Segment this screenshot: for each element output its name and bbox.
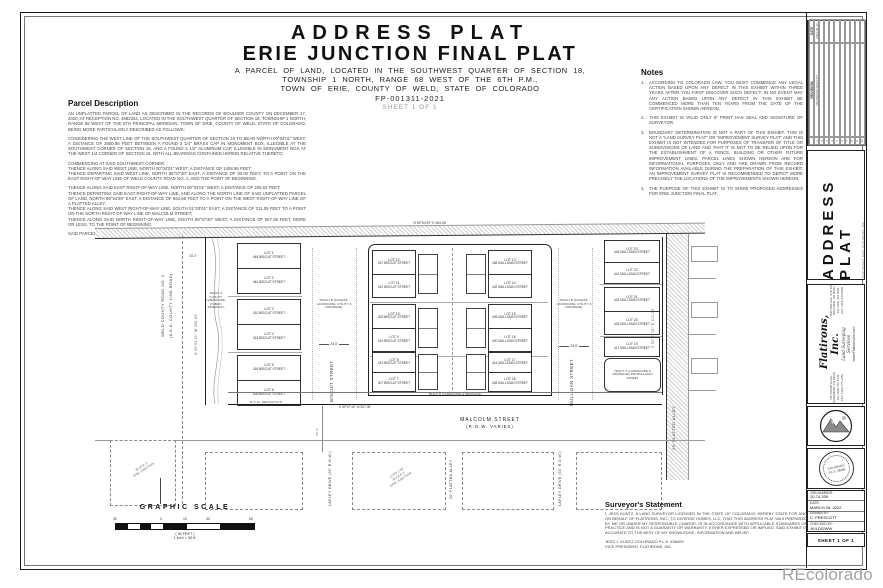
row-dedication-label: R.O.W. DEDICATION [240,401,292,405]
lapley-drive-west-label: LAPLEY DRIVE (60' R.O.W.) [328,452,332,506]
lot-13: LOT 13438 MULLIGAN STREET [489,251,531,274]
tract-b-west-label: TRACT B (ACCESS, LANDSCAPE, UTILITY & DR… [316,299,352,310]
road-centerline [182,236,183,504]
note-item: 2. THIS EXHIBIT IS VALID ONLY IF PRINT H… [641,115,803,125]
plat-sheet: ADDRESS PLAT ERIE JUNCTION FINAL PLAT A … [0,0,883,588]
building-lots-1-2: LOT 1448 BISCUIT STREET LOT 2440 BISCUIT… [237,243,301,294]
surveyors-statement-heading: Surveyor's Statement [605,500,807,509]
west-boundary-bearing: N 00°04'01" W 208.63' [194,288,198,380]
curb-line [356,248,357,400]
lot-16: LOT 16420 MULLIGAN STREET [489,328,531,352]
south-boundary-bearing: S 89°57'40" W 567.08' [300,406,410,410]
page-subtitle-plat-name: ERIE JUNCTION FINAL PLAT [120,43,700,66]
neighbor-parcel: LOTS 1-16 BLOCK 2 ERIE JUNCTION [352,452,446,510]
tract-b-east-label: TRACT B (ACCESS, LANDSCAPE, UTILITY & DR… [556,299,592,310]
parcel-description-p2: CONSIDERING THE WEST LINE OF THE SOUTHWE… [68,136,306,157]
building-lots-8-7: LOT 8413 BISCUIT STREET LOT 7407 BISCUIT… [372,352,416,392]
curb-line [592,248,593,400]
tract-d-label: TRACT D (LANDSCAPE & DRAINAGE) [420,393,490,396]
firm-name: Flatirons, Inc. [819,319,841,369]
note-item: 4. THE PURPOSE OF THIS EXHIBIT IS TO SHO… [641,186,803,196]
scale-ratio: 1 inch = 30 ft. [115,536,255,540]
neighbor-footprint [691,358,718,374]
sheet-title-vertical: ADDRESS PLAT COPYRIGHT 2022, FLATIRONS, … [808,150,866,280]
garage [466,254,486,294]
building-lots-23-22: LOT 23449 MULLIGAN STREET LOT 22441 MULL… [604,240,660,284]
lot-12: LOT 12437 BISCUIT STREET [373,251,415,274]
east-boundary-bearing: S 01°03'01" E 211.09' [651,282,655,374]
curb-line [558,248,559,400]
lot-3: LOT 3432 BISCUIT STREET [238,300,300,324]
sheet-number-box: SHEET 1 OF 1 [807,533,865,547]
neighbor-parcel-label: LOTS 1-16 BLOCK 2 ERIE JUNCTION [374,458,424,496]
surveyor-signature-title: VICE PRESIDENT, FLATIRONS, INC [605,545,807,550]
tract-a-strip [206,238,226,404]
lot-14: LOT 14432 MULLIGAN STREET [489,274,531,298]
neighbor-parcel-label: BLOCK 3 ERIE JUNCTION [121,453,165,486]
parcel-description-heading: Parcel Description [68,99,306,108]
lot-11: LOT 11431 BISCUIT STREET [373,274,415,298]
scale-bar: 30 0 15 30 60 ( IN FEET ) 1 inch = 30 ft… [115,518,255,540]
checked-by-row: CHECKED BY: JK/LDS/WW [808,522,864,532]
date-row: DATE: MARCH 28, 2022 [808,501,864,511]
parcel-description: Parcel Description AN UNPLATTED PARCEL O… [68,99,306,240]
lot-22: LOT 22441 MULLIGAN STREET [605,262,659,284]
lot-line [370,302,548,303]
south-alley-label: 20' PLATTED ALLEY [449,452,453,506]
dim-30ft: 30.0' [184,255,202,259]
parcel-description-p4: THENCE ALONG SAID EAST RIGHT-OF-WAY LINE… [68,185,306,227]
lot-5: LOT 5416 BISCUIT STREET [238,356,300,380]
building-lots-15-16: LOT 15426 MULLIGAN STREET LOT 16420 MULL… [488,304,532,352]
west-road-label-2: (A.K.A. COUNTY LINE ROAD) [168,240,173,372]
neighbor-lot-line [688,278,716,279]
east-alley-label: 20' PLATTED ALLEY [671,382,676,474]
header-legal-line-1: A PARCEL OF LAND, LOCATED IN THE SOUTHWE… [120,66,700,75]
notes-heading: Notes [641,68,803,77]
tract-a-label: TRACT A (UTILITY, LANDSCAPE, PUBLIC SIDE… [203,292,229,310]
building-lots-10-9: LOT 10425 BISCUIT STREET LOT 9419 BISCUI… [372,304,416,352]
dim-40ft: 40.2' [315,420,319,444]
lot-8: LOT 8413 BISCUIT STREET [373,353,415,372]
garage [418,308,438,348]
building-lots-13-14: LOT 13438 MULLIGAN STREET LOT 14432 MULL… [488,250,532,298]
watermark: REcolorado [782,565,873,585]
surveyor-seal: COLORADO P.L.S. 38409 [819,451,854,486]
mountain-logo-icon [819,409,853,443]
neighbor-lot-line [688,390,716,391]
dim-24ft-east: 24.0' [558,344,590,348]
firm-office-2: 3825 IRIS AVE, STE 395 BOULDER, CO 80301… [830,284,844,317]
dimension-leader [322,406,323,452]
note-item: 3. BOUNDARY DETERMINATION IS NOT A PART … [641,130,803,182]
lot-line [228,352,302,353]
job-number-row: JOB NUMBER: 20-74,335 [808,491,864,501]
garage [466,308,486,348]
notes: Notes 1. ACCORDING TO COLORADO LAW, YOU … [641,68,803,200]
lot-1: LOT 1448 BISCUIT STREET [238,244,300,268]
lot-9: LOT 9419 BISCUIT STREET [373,328,415,352]
scale-leader-line [160,478,161,504]
firm-tagline: Land Surveying Services [841,319,851,369]
lot-17: LOT 17414 MULLIGAN STREET [489,353,531,372]
tract-c-label: TRACT C (LANDSCAPE & DRAINAGE) 409 MULLI… [611,370,655,381]
neighbor-lot-line [688,334,716,335]
scale-bar-segments [115,523,255,530]
graphic-scale-heading: GRAPHIC SCALE [103,504,267,511]
neighbor-footprint [691,246,718,262]
tract-a-curves [206,238,226,404]
lot-23: LOT 23449 MULLIGAN STREET [605,241,659,262]
header-legal-line-3: TOWN OF ERIE, COUNTY OF WELD, STATE OF C… [120,84,700,93]
firm-block: 655 FOURTH AVE. LONGMONT, CO 80501 PH: (… [808,284,866,404]
building-lots-12-11: LOT 12437 BISCUIT STREET LOT 11431 BISCU… [372,250,416,298]
parcel-description-p1: AN UNPLATTED PARCEL OF LAND AS DESCRIBED… [68,111,306,132]
neighbor-parcel: BLOCK 3 ERIE JUNCTION [110,440,176,506]
lot-7: LOT 7407 BISCUIT STREET [373,372,415,392]
malcolm-south-row-line [95,440,705,441]
neighbor-parcel [462,452,554,510]
east-alley-band [666,234,689,480]
surveyors-statement-body: I, JESS KUNTZ, A LAND SURVEYOR LICENSED … [605,512,807,536]
north-boundary-bearing: N 89°54'29" E 564.68' [370,222,490,226]
neighbor-parcel [205,452,303,510]
surveyors-statement: Surveyor's Statement I, JESS KUNTZ, A LA… [605,500,807,550]
garage [466,354,486,390]
surveyor-seal-text: COLORADO P.L.S. 38409 [820,452,852,484]
scale-ticks: 30 0 15 30 60 [115,518,255,522]
firm-logo-box [807,406,865,446]
lot-4: LOT 4424 BISCUIT STREET [238,324,300,349]
east-boundary-line [662,237,663,395]
page-title: ADDRESS PLAT [120,22,700,45]
malcolm-street-label: MALCOLM STREET (R.O.W. VARIES) [430,417,550,430]
copyright-note: COPYRIGHT 2022, FLATIRONS, INC [861,222,865,278]
lapley-drive-east-label: LAPLEY DRIVE (60' R.O.W.) [558,452,562,506]
firm-office-1: 655 FOURTH AVE. LONGMONT, CO 80501 PH: (… [830,371,844,404]
lot-10: LOT 10425 BISCUIT STREET [373,305,415,328]
neighbor-footprint [691,302,718,318]
garage [418,254,438,294]
surveyor-seal-box: COLORADO P.L.S. 38409 [807,448,865,489]
building-lots-17-18: LOT 17414 MULLIGAN STREET LOT 18408 MULL… [488,352,532,392]
parcel-description-p3: COMMENCING AT SAID SOUTHWEST CORNER: THE… [68,161,306,182]
curb-line [312,248,313,400]
drawn-by-row: DRAWN BY: C. PRESCOTT [808,512,864,522]
header-legal-line-2: TOWNSHIP 1 NORTH, RANGE 68 WEST OF THE 6… [120,75,700,84]
job-info-box: JOB NUMBER: 20-74,335 DATE: MARCH 28, 20… [807,490,865,532]
lot-18: LOT 18408 MULLIGAN STREET [489,372,531,392]
revision-table: REVISION DATE 1 REVISIONS PER CITY 2022-… [808,20,866,146]
west-road-label-1: WELD COUNTY ROAD NO. 1 [160,240,165,372]
lot-2: LOT 2440 BISCUIT STREET [238,268,300,293]
note-item: 1. ACCORDING TO COLORADO LAW, YOU MUST C… [641,80,803,111]
lot-15: LOT 15426 MULLIGAN STREET [489,305,531,328]
graphic-scale: GRAPHIC SCALE 30 0 15 30 60 ( IN FEET ) … [103,504,267,540]
middle-block-centerline [452,248,453,390]
firm-url: www.FlatironsInc.com [852,319,856,369]
dim-24ft-west: 24.0' [318,342,350,346]
lot-line [228,296,302,297]
garage [418,354,438,390]
building-lots-3-4: LOT 3432 BISCUIT STREET LOT 4424 BISCUIT… [237,299,301,350]
